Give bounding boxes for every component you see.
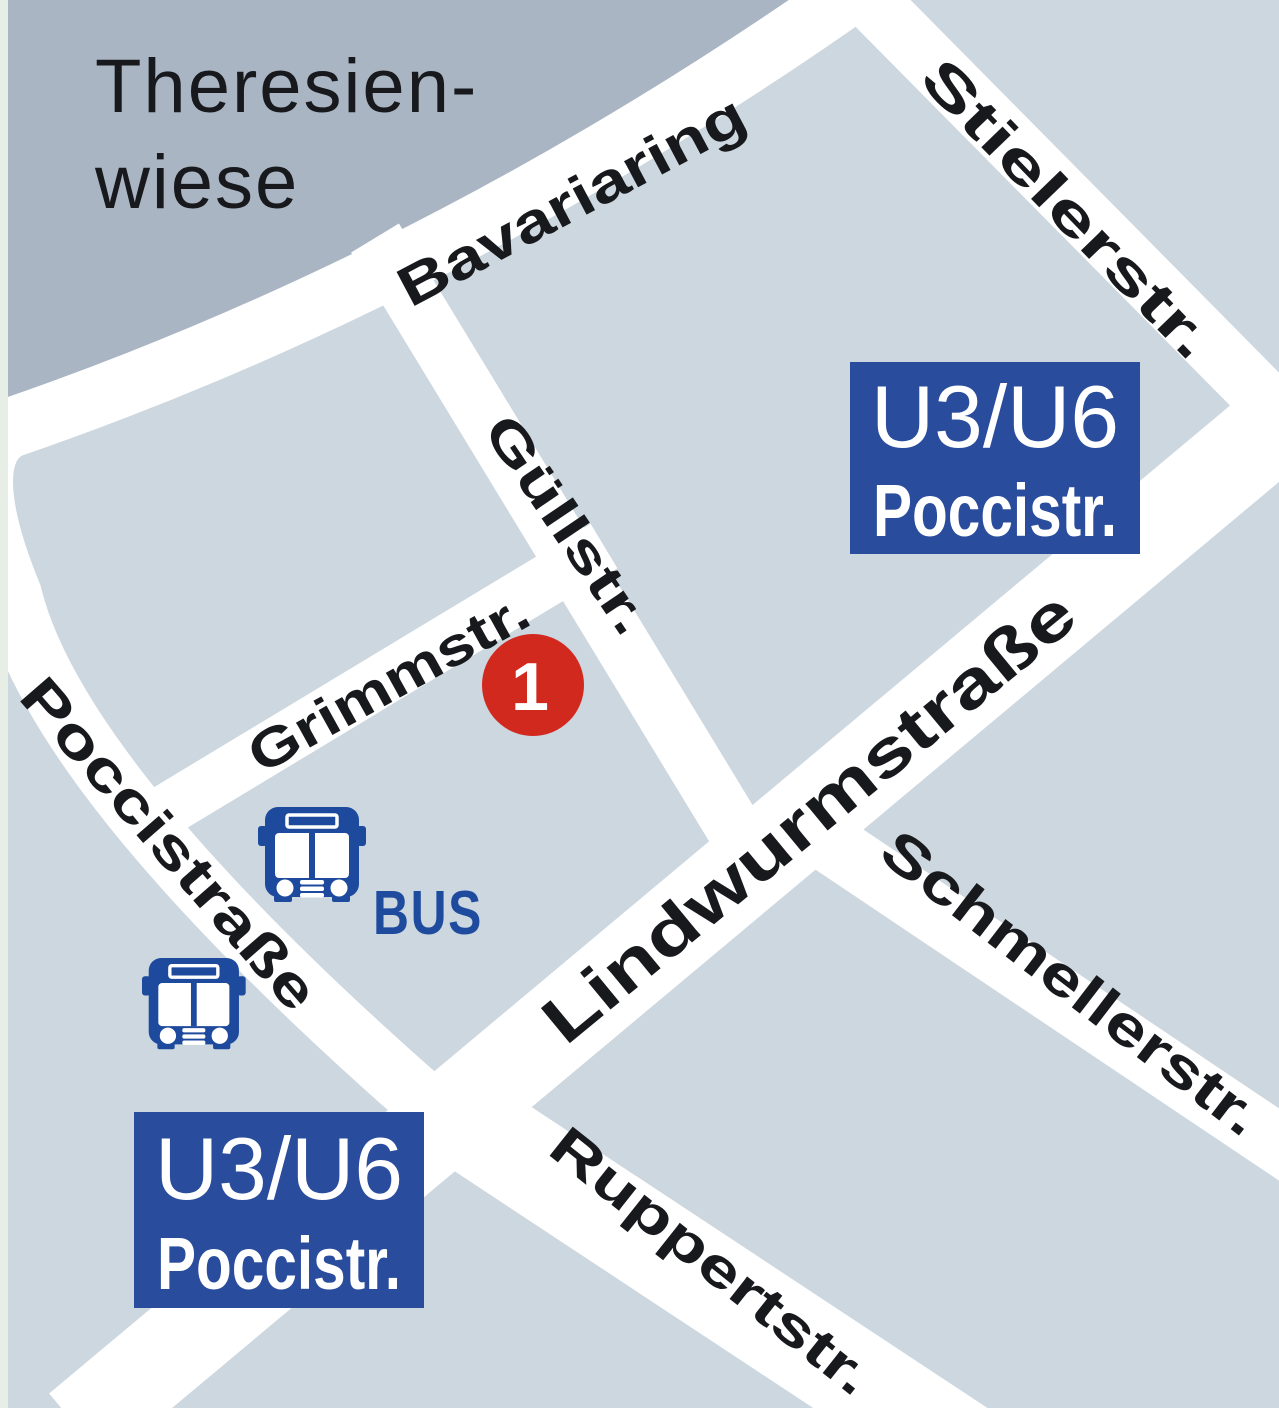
area-label-theresienwiese-line1: Theresien- — [95, 44, 478, 129]
ubahn-badge-top-right: U3/U6 Poccistr. — [850, 362, 1140, 554]
bus-icon — [258, 807, 366, 902]
ubahn-badge-bottom-left-lines: U3/U6 — [155, 1119, 403, 1218]
route-marker-1-number: 1 — [511, 649, 549, 725]
route-marker-1: 1 — [482, 634, 584, 736]
bus-icon — [142, 958, 246, 1049]
ubahn-badge-top-right-lines: U3/U6 — [871, 367, 1119, 466]
ubahn-badge-bottom-left-station: Poccistr. — [157, 1222, 401, 1305]
ubahn-badge-top-right-station: Poccistr. — [873, 469, 1117, 552]
bus-stop-label: BUS — [373, 879, 483, 948]
munich-transit-map: Theresien- wiese Bavariaring Stielerstr.… — [0, 0, 1279, 1408]
area-label-theresienwiese-line2: wiese — [94, 140, 299, 225]
ubahn-badge-bottom-left: U3/U6 Poccistr. — [134, 1112, 424, 1308]
left-edge-strip — [0, 0, 8, 1408]
